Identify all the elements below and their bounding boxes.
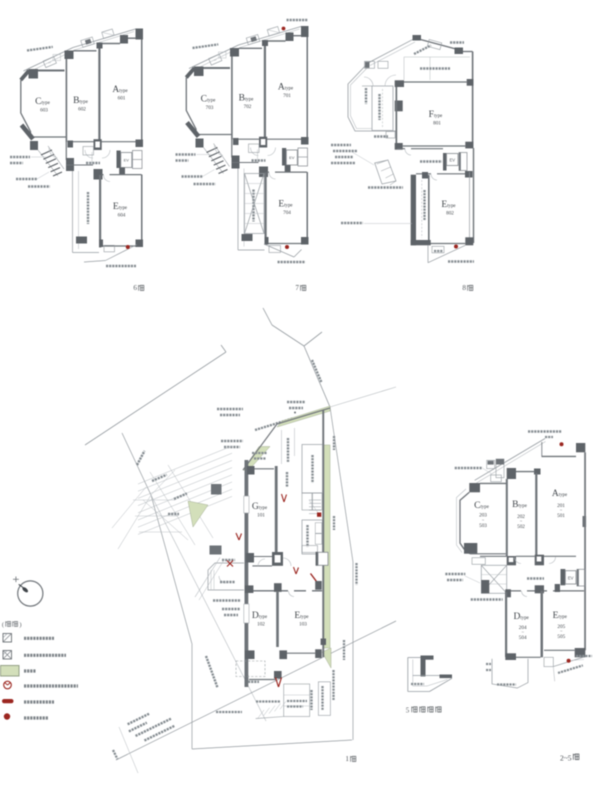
svg-text:602: 602: [78, 107, 86, 113]
svg-text:603: 603: [40, 108, 48, 114]
svg-text:601: 601: [118, 96, 126, 102]
svg-text:504: 504: [519, 635, 527, 641]
svg-text:EV: EV: [450, 158, 456, 163]
svg-text:103: 103: [299, 622, 307, 628]
svg-text:703: 703: [206, 105, 214, 111]
svg-text:6: 6: [133, 284, 137, 292]
svg-text:501: 501: [557, 513, 565, 519]
svg-text:1: 1: [345, 755, 349, 763]
svg-text:604: 604: [118, 213, 126, 219]
svg-text:(: (: [2, 622, 4, 629]
svg-text:EV: EV: [124, 158, 130, 163]
svg-text:8: 8: [462, 284, 466, 292]
svg-text:EV: EV: [568, 576, 574, 581]
svg-text:701: 701: [283, 93, 291, 99]
svg-text:702: 702: [244, 104, 252, 110]
svg-text:502: 502: [517, 524, 525, 530]
svg-text:EV: EV: [289, 155, 295, 160]
svg-text:2~5: 2~5: [560, 754, 572, 763]
svg-text:102: 102: [257, 622, 265, 628]
svg-text:7: 7: [295, 284, 299, 292]
svg-text:503: 503: [479, 523, 487, 529]
svg-text:505: 505: [557, 634, 565, 640]
svg-text:): ): [19, 622, 21, 629]
svg-text:704: 704: [283, 210, 291, 216]
svg-text:801: 801: [433, 121, 441, 127]
svg-text:5: 5: [406, 707, 410, 715]
svg-text:101: 101: [257, 513, 265, 519]
svg-text:802: 802: [446, 211, 454, 217]
